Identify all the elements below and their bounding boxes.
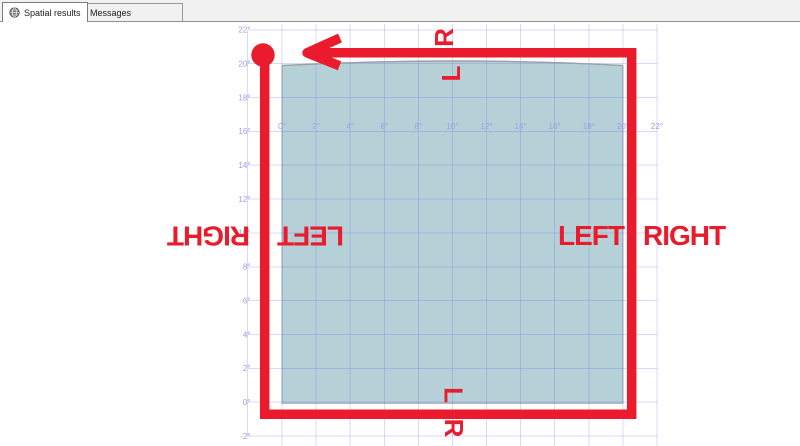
y-axis-tick-label: 4°	[243, 330, 251, 339]
x-axis-tick-label: 4°	[346, 122, 354, 131]
y-axis-tick-label: 16°	[238, 127, 250, 136]
y-axis-tick-label: -2°	[240, 432, 250, 441]
label-left-right-edge: LEFT	[558, 220, 625, 251]
tab-messages-label: Messages	[90, 8, 131, 18]
spatial-results-window: 0°2°4°6°8°10°12°14°16°18°20°22°22°20°18°…	[0, 0, 800, 446]
label-r-bottom-edge: R	[439, 419, 469, 438]
y-axis-tick-label: 0°	[243, 398, 251, 407]
label-l-bottom-edge: L	[438, 387, 468, 403]
label-l-top-edge: L	[436, 65, 466, 81]
x-axis-tick-label: 16°	[549, 122, 561, 131]
x-axis-tick-label: 10°	[446, 122, 458, 131]
label-right-right-edge: RIGHT	[643, 220, 726, 251]
x-axis-tick-label: 18°	[583, 122, 595, 131]
spatial-plot: 0°2°4°6°8°10°12°14°16°18°20°22°22°20°18°…	[0, 0, 800, 446]
start-point-marker	[251, 43, 274, 66]
globe-icon	[9, 7, 20, 18]
y-axis-tick-label: 12°	[238, 195, 250, 204]
x-axis-tick-label: 0°	[278, 122, 286, 131]
y-axis-tick-label: 8°	[243, 263, 251, 272]
y-axis-tick-label: 2°	[243, 364, 251, 373]
tab-spatial-results-label: Spatial results	[24, 8, 81, 18]
label-left-left-edge-rotated: LEFT	[277, 220, 344, 251]
y-axis-tick-label: 14°	[238, 161, 250, 170]
x-axis-tick-label: 22°	[651, 122, 663, 131]
x-axis-tick-label: 14°	[515, 122, 527, 131]
label-right-left-edge-rotated: RIGHT	[167, 220, 250, 251]
x-axis-tick-label: 8°	[415, 122, 423, 131]
label-r-top-edge: R	[429, 28, 459, 47]
y-axis-tick-label: 20°	[238, 60, 250, 69]
y-axis-tick-label: 6°	[243, 296, 251, 305]
y-axis-tick-label: 18°	[238, 93, 250, 102]
y-axis-tick-label: 22°	[238, 26, 250, 35]
x-axis-tick-label: 12°	[480, 122, 492, 131]
x-axis-tick-label: 6°	[380, 122, 388, 131]
x-axis-tick-label: 2°	[312, 122, 320, 131]
tab-spatial-results[interactable]: Spatial results	[2, 2, 88, 22]
results-tab-bar: Spatial results Messages	[0, 0, 800, 22]
